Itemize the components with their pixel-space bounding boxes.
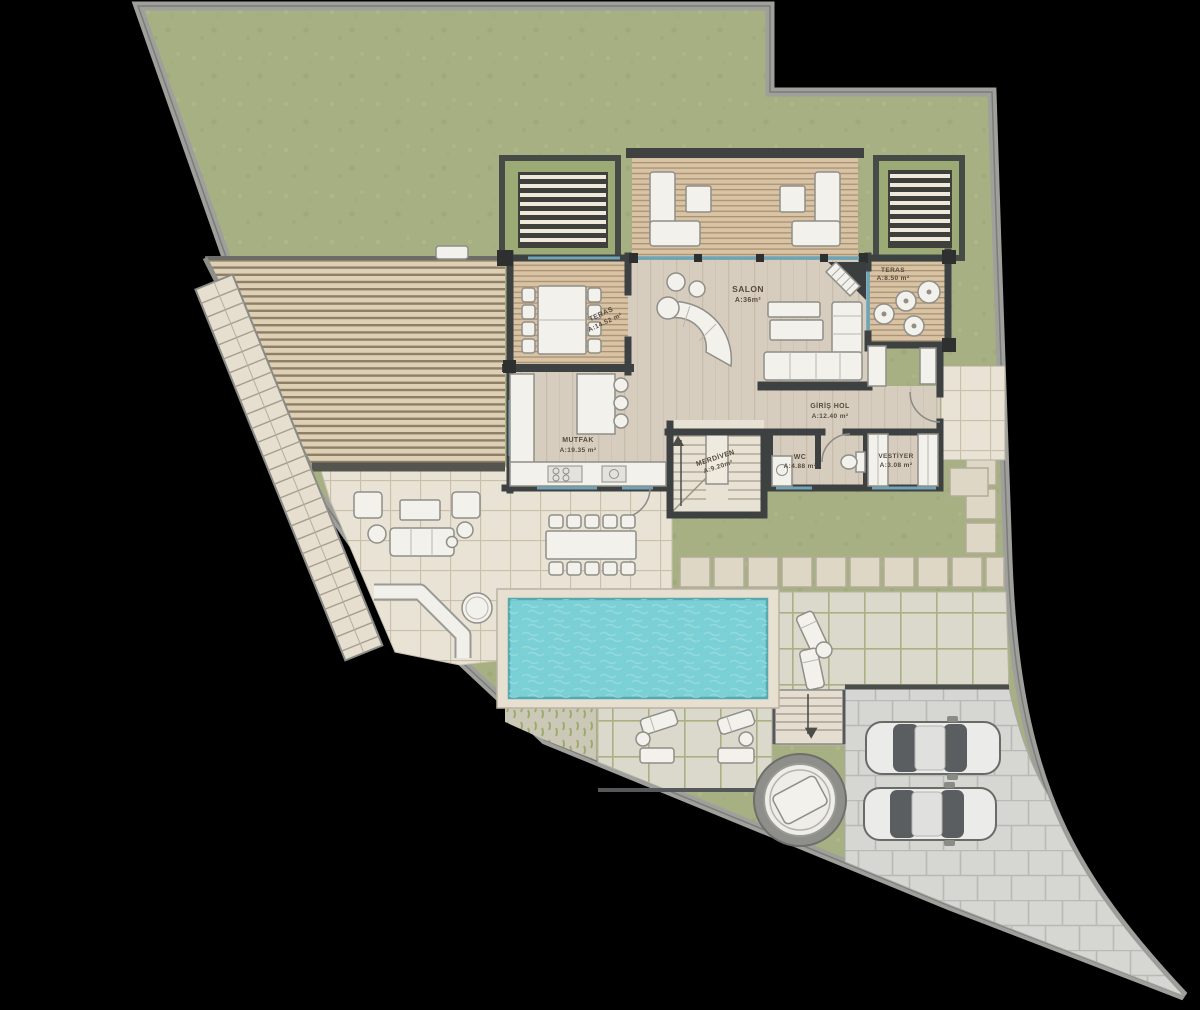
coffee-table	[770, 320, 823, 340]
wc-area: A:4.88 m²	[784, 463, 817, 470]
kitchen-island	[577, 374, 615, 434]
floor-plan-drawing: SALON A:36m² TERAS A:8.50 m² TERAS A:14.…	[0, 0, 1200, 1010]
kitchen-counter-left	[510, 374, 534, 466]
wc-label: WC	[794, 454, 806, 461]
round-side-table	[657, 297, 679, 319]
wc-sink	[772, 456, 792, 486]
upper-deck-terrace	[626, 148, 864, 257]
armchair	[354, 492, 382, 518]
l-sofa-arm	[832, 302, 862, 354]
entry-porch	[941, 366, 1005, 460]
salon-label: SALON	[732, 284, 764, 294]
kitchen-sink	[602, 466, 626, 482]
outdoor-dining-set	[546, 515, 636, 575]
vestiyer-label: VESTİYER	[878, 452, 913, 460]
outdoor-sofa	[390, 528, 454, 556]
vestiyer-area: A:3.08 m²	[880, 462, 913, 469]
l-sofa-seat	[764, 352, 862, 380]
armchair	[452, 492, 480, 518]
teras-salon-label: TERAS	[881, 267, 905, 274]
giris-hol-area: A:12.40 m²	[812, 413, 849, 420]
site-plan-canvas: SALON A:36m² TERAS A:8.50 m² TERAS A:14.…	[0, 0, 1200, 1010]
hall-console	[868, 346, 886, 386]
planted-strip	[505, 705, 596, 760]
hall-closet	[920, 348, 936, 384]
salon-area: A:36m²	[735, 297, 761, 304]
car-1	[866, 716, 1000, 780]
pool-stairs	[774, 690, 844, 744]
teras-salon-area: A:8.50 m²	[877, 275, 910, 282]
giris-hol-label: GİRİŞ HOL	[810, 402, 850, 410]
mutfak-label: MUTFAK	[562, 437, 594, 444]
pergola-left	[502, 158, 618, 258]
mutfak-area: A:19.35 m²	[560, 447, 597, 454]
kitchen-counter-bottom	[510, 462, 666, 486]
console-table	[768, 302, 820, 317]
car-2	[864, 782, 996, 846]
pergola-right	[876, 158, 962, 258]
wc-toilet	[841, 455, 857, 469]
outdoor-dining-table	[546, 531, 636, 559]
spa-circle	[754, 754, 846, 846]
coffee-table	[400, 500, 440, 520]
swimming-pool	[497, 589, 779, 708]
deck-step	[436, 246, 468, 259]
